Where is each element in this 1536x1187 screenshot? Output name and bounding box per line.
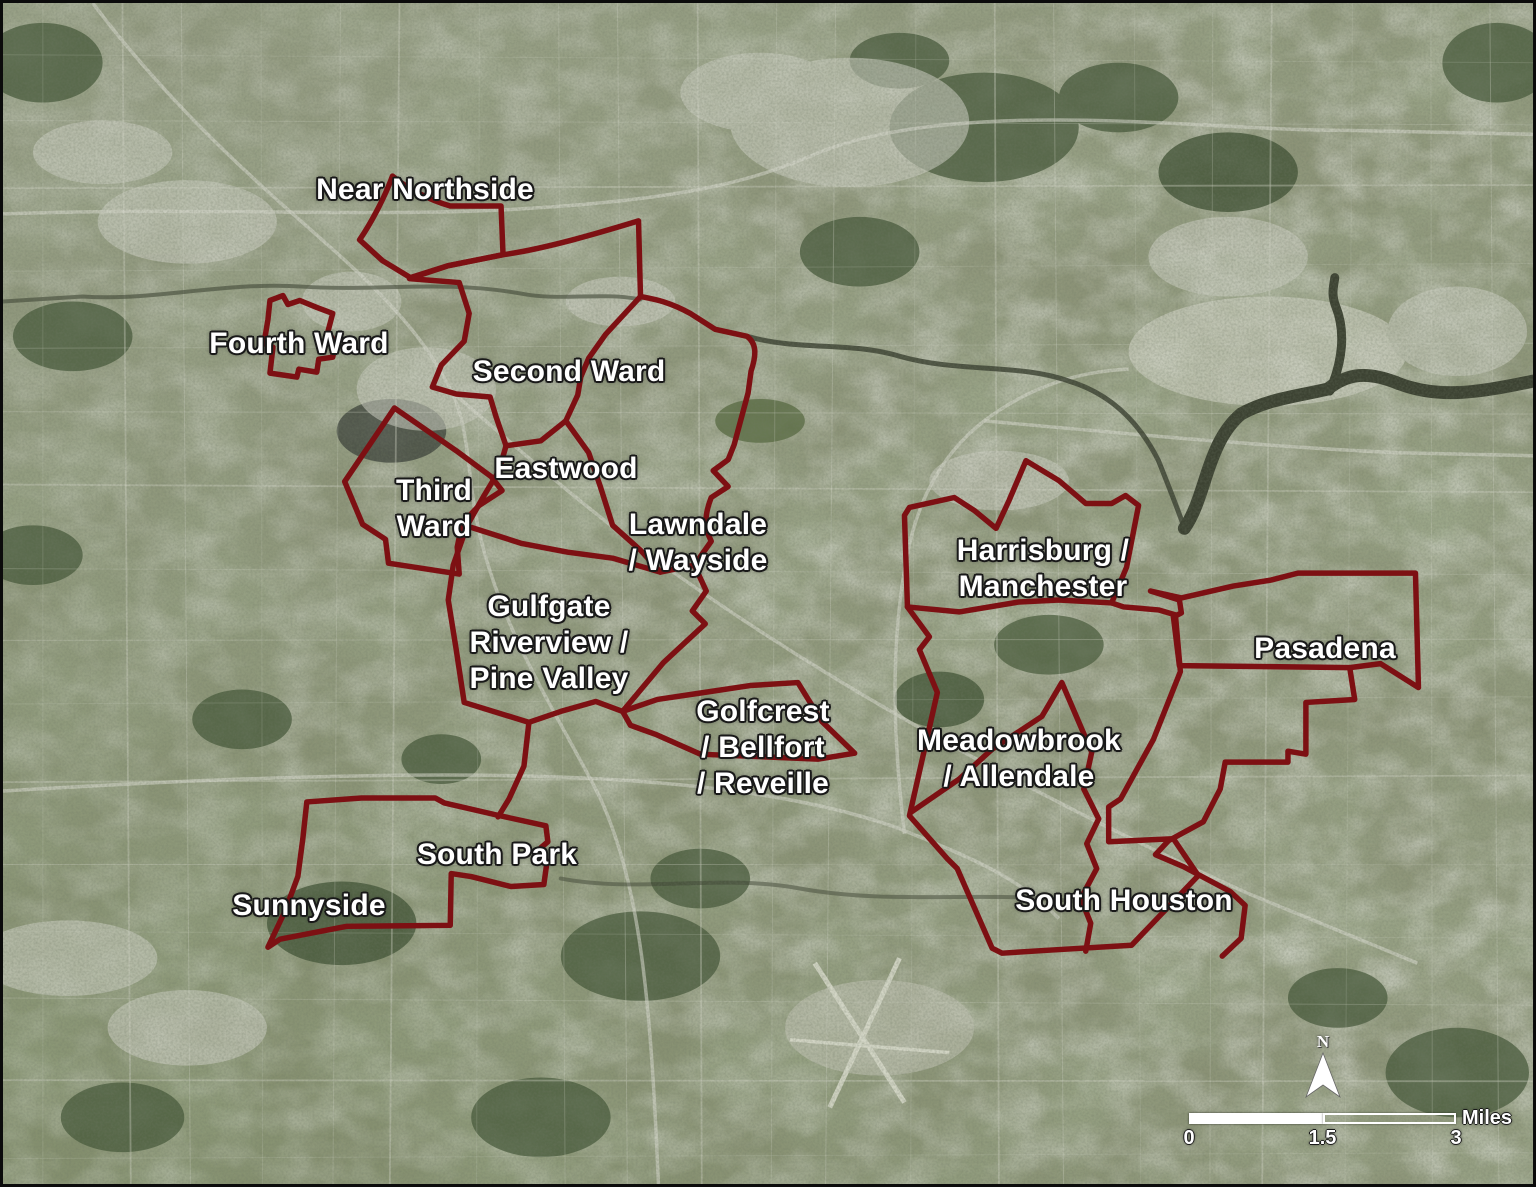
scale-tick-3: 3 (1450, 1127, 1461, 1150)
satellite-map (3, 3, 1533, 1184)
scale-bar-ticks: 01.53 (1189, 1127, 1456, 1153)
north-arrow: N (1303, 1033, 1343, 1108)
north-arrow-icon (1303, 1051, 1343, 1101)
scale-bar-segments (1189, 1113, 1456, 1124)
scale-unit-label: Miles (1462, 1107, 1512, 1130)
map-frame: Near NorthsideFourth WardSecond WardEast… (0, 0, 1536, 1187)
north-letter: N (1303, 1033, 1343, 1051)
scale-bar-hollow-segment (1323, 1113, 1457, 1124)
scale-tick-1.5: 1.5 (1309, 1127, 1337, 1150)
scale-bar-solid-segment (1189, 1113, 1323, 1124)
scale-tick-0: 0 (1183, 1127, 1194, 1150)
scale-bar: 01.53 Miles (1189, 1113, 1509, 1163)
